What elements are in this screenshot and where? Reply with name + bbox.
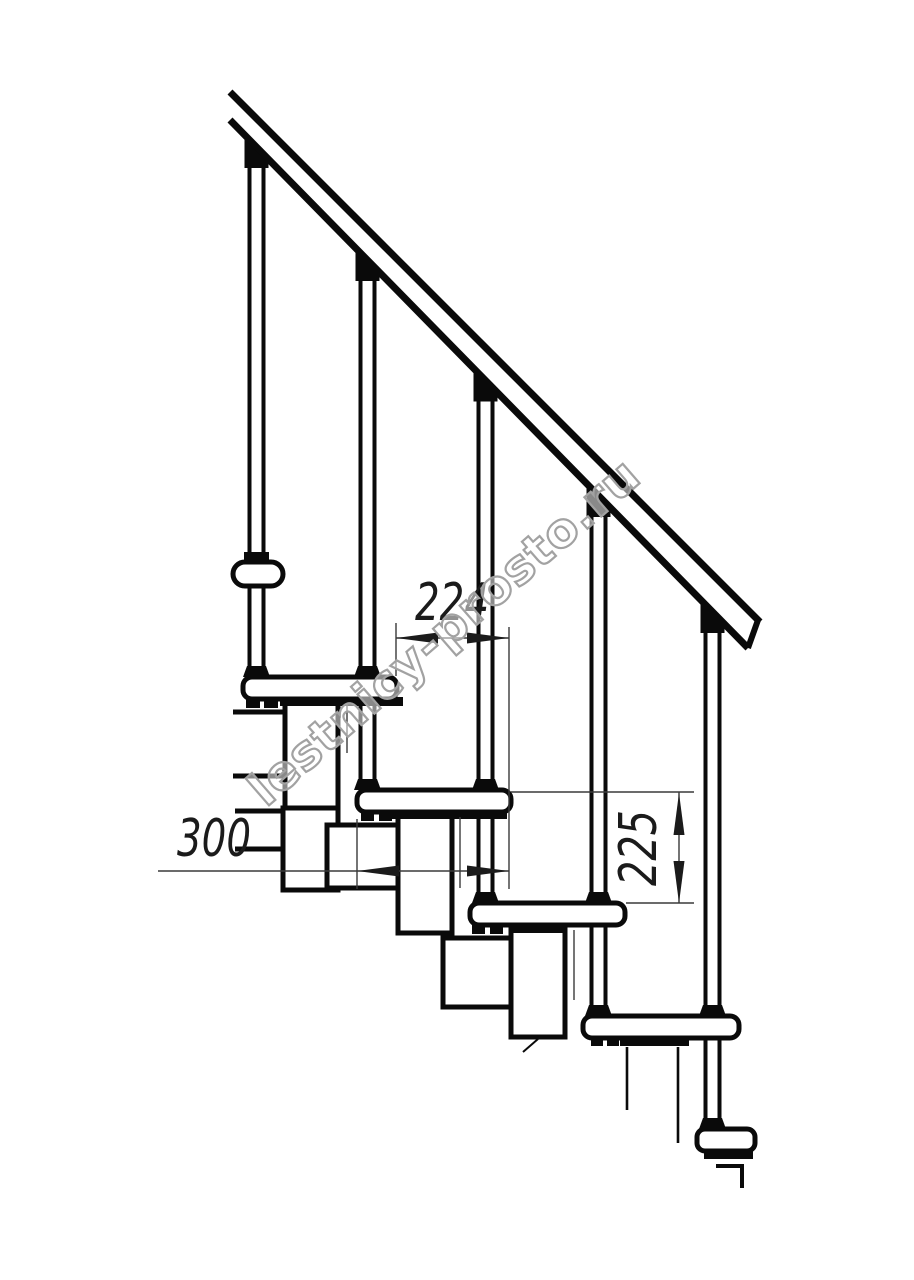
staircase-drawing-page: 224 300 225 lestnicy-prosto.ru bbox=[0, 0, 914, 1280]
baluster-4-collar bbox=[585, 892, 612, 903]
module-column-2 bbox=[398, 812, 452, 933]
bottom-step-cut bbox=[716, 1164, 744, 1188]
tread-4-feet bbox=[607, 1036, 619, 1046]
arrow-down-icon bbox=[674, 861, 685, 903]
dim-riser-label: 225 bbox=[609, 810, 669, 886]
tread-1-feet bbox=[264, 697, 278, 708]
module-column-3 bbox=[511, 925, 565, 1037]
tread-3-band bbox=[513, 923, 564, 933]
dim-depth-label: 300 bbox=[177, 809, 251, 869]
tread-2-band bbox=[387, 810, 507, 819]
arrow-up-icon bbox=[674, 793, 685, 835]
tread-3-feet bbox=[490, 923, 503, 934]
tread-3 bbox=[470, 903, 625, 925]
dimension-riser: 225 bbox=[511, 792, 694, 903]
rail-cross-section bbox=[233, 562, 283, 586]
handrail-end-cap bbox=[748, 620, 758, 648]
tread-4-band bbox=[620, 1036, 689, 1046]
baluster-4-flange bbox=[585, 1005, 612, 1016]
baluster-4 bbox=[592, 500, 606, 1005]
baluster-2-flange bbox=[354, 779, 381, 790]
baluster-3-collar bbox=[472, 779, 499, 790]
baluster-3-flange bbox=[472, 892, 499, 903]
staircase-drawing-svg: 224 300 225 lestnicy-prosto.ru bbox=[0, 0, 914, 1280]
tread-4-feet bbox=[591, 1036, 603, 1046]
tread-5-band bbox=[704, 1149, 753, 1159]
handrail-top-line bbox=[230, 92, 760, 622]
module-section-2 bbox=[327, 825, 403, 888]
break-tick bbox=[523, 1039, 538, 1052]
baluster-5 bbox=[706, 616, 720, 1118]
tread-5 bbox=[697, 1129, 755, 1151]
module-section-3 bbox=[443, 938, 518, 1007]
watermark-text: lestnicy-prosto.ru bbox=[238, 448, 651, 818]
module-column-4 bbox=[627, 1047, 678, 1143]
baluster-1-flange bbox=[243, 666, 270, 677]
baluster-5-flange bbox=[699, 1118, 726, 1129]
tread-4 bbox=[583, 1016, 739, 1038]
baluster-5-collar bbox=[699, 1005, 726, 1016]
arrow-right-icon bbox=[467, 866, 509, 877]
tread-2-feet bbox=[361, 810, 374, 821]
handrail-section-bracket bbox=[233, 552, 283, 586]
baluster-1 bbox=[250, 152, 264, 676]
tread-1-feet bbox=[246, 697, 260, 708]
tread-2 bbox=[357, 790, 511, 812]
tread-3-feet bbox=[472, 923, 485, 934]
